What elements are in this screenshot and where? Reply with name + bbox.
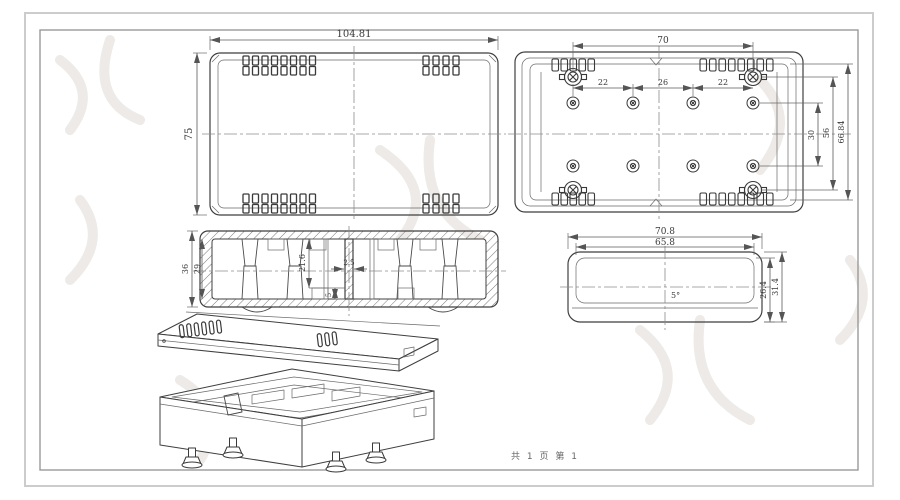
dim-end-inner-width: 65.8 <box>655 238 675 248</box>
dim-end-outer-width: 70.8 <box>655 227 675 237</box>
vent-slots-bottom-left <box>243 194 316 213</box>
dim-boss-span: 70 <box>657 36 669 46</box>
drawing-sheet: 104.81 75 <box>0 0 900 500</box>
dim-pitch-left: 22 <box>598 78 608 87</box>
dim-pitch-center: 26 <box>658 78 668 87</box>
dim-section-inner-height: 29 <box>193 264 202 274</box>
iso-cover <box>158 314 438 371</box>
dim-top-width: 104.81 <box>337 29 372 40</box>
dim-corner-span: 56 <box>822 128 831 138</box>
dim-foot: 5 <box>325 293 333 297</box>
isometric-exploded-view <box>158 314 438 472</box>
dim-boss-height: 21.6 <box>298 254 307 272</box>
dim-draft-angle: 5° <box>671 291 680 300</box>
dim-section-outer-height: 36 <box>181 264 190 274</box>
middle-screw-bosses <box>567 97 759 172</box>
dim-row-gap: 30 <box>807 130 816 140</box>
edge-tabs-bottom-right <box>700 193 773 205</box>
vent-slots-top-right <box>423 56 459 75</box>
technical-drawing: 104.81 75 <box>0 0 900 500</box>
dim-rib: 2.5 <box>343 259 354 267</box>
dim-pitch-right: 22 <box>718 78 728 87</box>
dim-inner-height: 66.84 <box>837 121 846 144</box>
page-footer: 共 1 页 第 1 <box>511 450 579 462</box>
foot-bump-left <box>242 307 272 312</box>
vent-slots-top-left <box>243 56 316 75</box>
top-view: 104.81 75 <box>184 29 506 222</box>
section-view: 36 29 21.6 5 2.5 <box>181 226 506 326</box>
foot-bump-right <box>428 307 458 312</box>
end-view: 5° 70.8 65.8 26.4 31.4 <box>560 227 787 330</box>
dim-end-outer-height: 31.4 <box>771 278 780 296</box>
bottom-view: 70 22 26 22 30 56 66.84 <box>508 36 853 220</box>
dim-end-inner-height: 26.4 <box>759 281 768 299</box>
edge-tabs-top-right <box>700 59 773 71</box>
dim-top-height: 75 <box>184 128 195 141</box>
